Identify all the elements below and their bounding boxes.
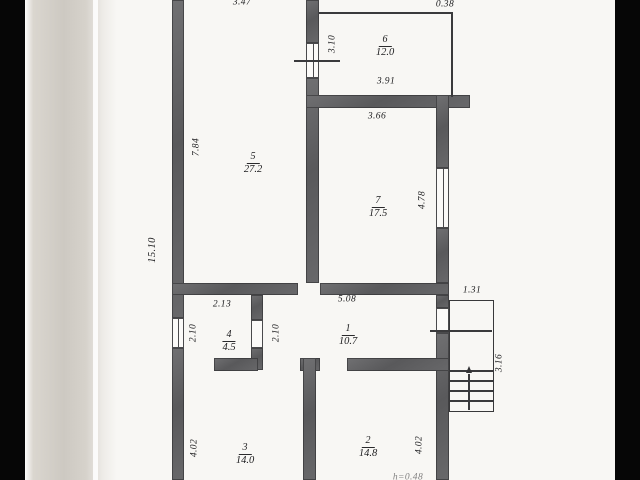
stairs-direction-arrow-icon <box>466 366 472 373</box>
room-label-1: 1 10.7 <box>339 318 357 348</box>
screenshot-stage: 3.47 0.38 3.91 3.66 2.13 5.08 1.31 h=0.4… <box>0 0 640 480</box>
wall-segment <box>251 295 263 320</box>
stair-tread <box>450 400 493 402</box>
window-marker-line <box>294 60 340 62</box>
wall-segment <box>172 348 184 480</box>
stair-tread <box>450 390 493 392</box>
window-glass-line <box>178 319 179 347</box>
wall-segment <box>347 358 449 371</box>
dimension-label: 2.13 <box>213 300 231 310</box>
room-number: 2 <box>362 436 375 448</box>
room-area: 4.5 <box>222 342 235 354</box>
wall-segment <box>436 95 449 168</box>
window-symbol <box>436 168 449 228</box>
dimension-label: 1.31 <box>463 286 481 296</box>
floor-plan: 3.47 0.38 3.91 3.66 2.13 5.08 1.31 h=0.4… <box>0 0 640 480</box>
stair-tread <box>450 380 493 382</box>
room-label-2: 2 14.8 <box>359 430 377 460</box>
room-number: 4 <box>223 330 236 342</box>
wall-segment <box>172 283 298 295</box>
room-area: 27.2 <box>244 164 262 176</box>
wall-segment <box>306 0 319 43</box>
room-area: 14.0 <box>236 455 254 467</box>
room-number: 5 <box>247 152 260 164</box>
wall-segment <box>436 295 449 308</box>
thin-wall-line <box>319 12 452 14</box>
dimension-label: 4.78 <box>418 191 428 209</box>
dimension-label: 3.10 <box>328 35 338 53</box>
room-label-5: 5 27.2 <box>244 146 262 176</box>
dimension-label: 15.10 <box>148 237 159 263</box>
stairs-arrow-stem <box>468 374 470 410</box>
door-opening <box>251 320 263 348</box>
wall-segment <box>306 78 319 283</box>
room-area: 10.7 <box>339 336 357 348</box>
dimension-label: 5.08 <box>338 295 356 305</box>
dimension-label: 3.47 <box>233 0 251 8</box>
staircase <box>449 300 494 412</box>
wall-segment <box>172 0 184 318</box>
dimension-label: 2.10 <box>272 324 282 342</box>
dimension-label: 0.38 <box>436 0 454 10</box>
room-number: 6 <box>379 35 392 47</box>
dimension-label: 4.02 <box>190 439 200 457</box>
room-label-4: 4 4.5 <box>222 324 235 354</box>
dimension-label-clipped: h=0.48 <box>393 473 423 480</box>
room-label-6: 6 12.0 <box>376 29 394 59</box>
window-glass-line <box>443 169 444 227</box>
wall-segment <box>320 283 449 295</box>
room-number: 3 <box>239 443 252 455</box>
dimension-label: 3.16 <box>495 354 505 372</box>
wall-segment <box>436 228 449 283</box>
wall-segment <box>214 358 258 371</box>
room-label-3: 3 14.0 <box>236 437 254 467</box>
dimension-label: 3.66 <box>368 112 386 122</box>
wall-segment <box>436 333 449 480</box>
window-symbol <box>172 318 184 348</box>
room-area: 14.8 <box>359 448 377 460</box>
room-number: 1 <box>342 324 355 336</box>
room-area: 12.0 <box>376 47 394 59</box>
dimension-label: 7.84 <box>192 138 202 156</box>
room-area: 17.5 <box>369 208 387 220</box>
dimension-label: 2.10 <box>189 324 199 342</box>
room-label-7: 7 17.5 <box>369 190 387 220</box>
room-number: 7 <box>372 196 385 208</box>
thin-wall-line <box>451 12 453 97</box>
dimension-label: 4.02 <box>415 436 425 454</box>
wall-segment <box>303 358 316 480</box>
dimension-label: 3.91 <box>377 77 395 87</box>
